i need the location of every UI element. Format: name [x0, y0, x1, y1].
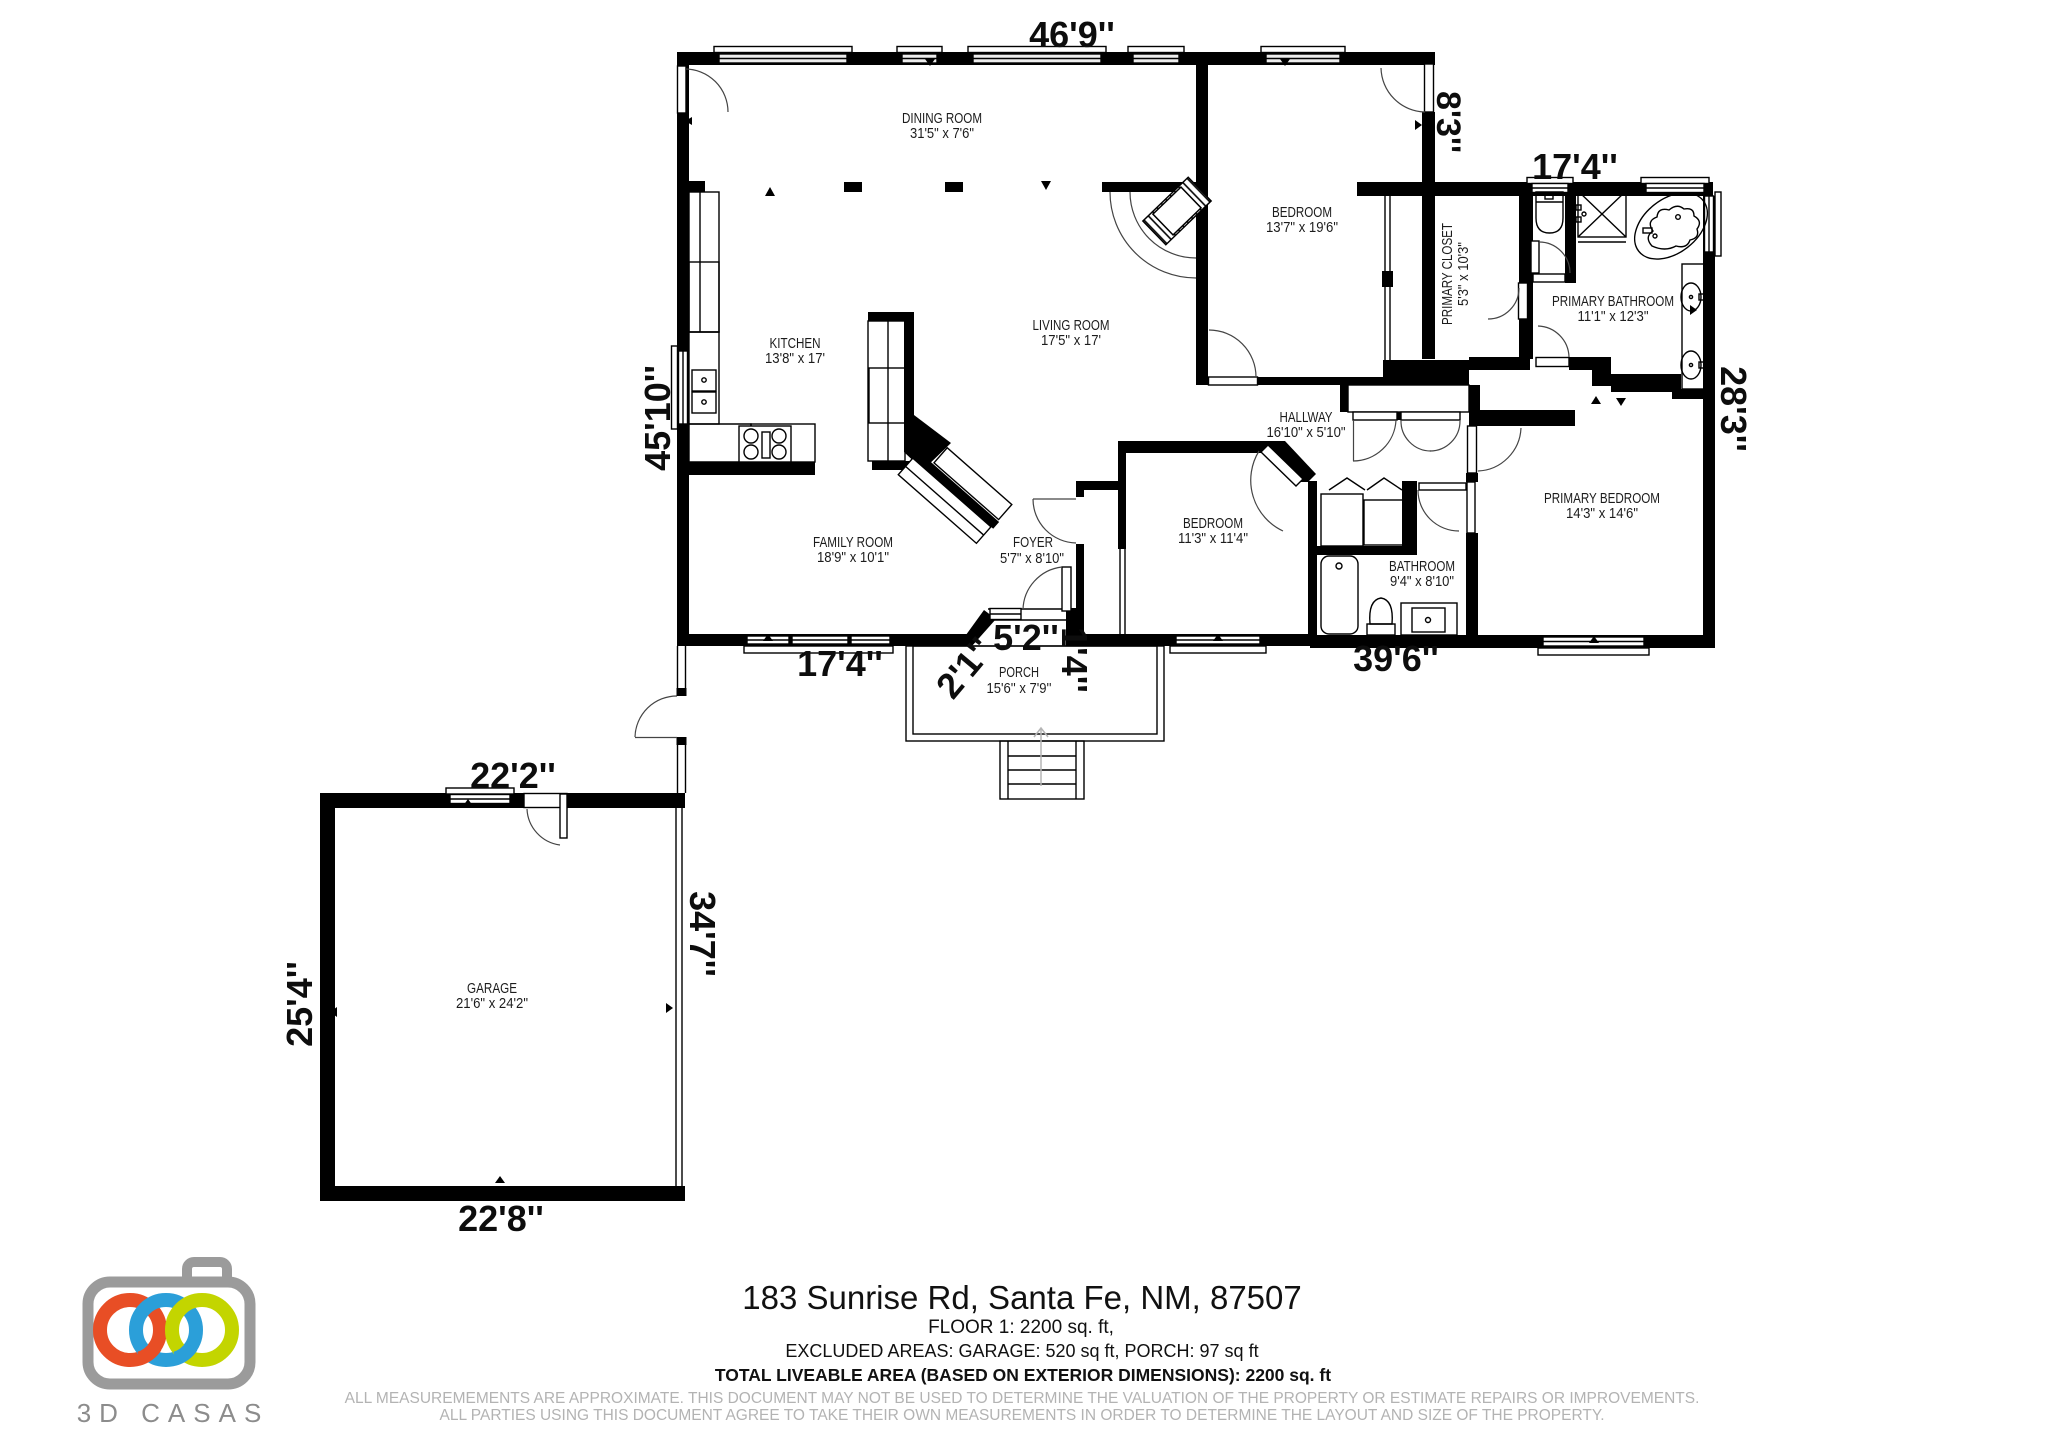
svg-text:8'3'': 8'3'' [1429, 91, 1467, 153]
svg-text:GARAGE: GARAGE [467, 981, 517, 997]
svg-text:FLOOR 1: 2200 sq. ft,: FLOOR 1: 2200 sq. ft, [928, 1317, 1114, 1338]
svg-text:ALL PARTIES USING THIS DOCUMEN: ALL PARTIES USING THIS DOCUMENT AGREE TO… [439, 1407, 1604, 1424]
svg-text:16'10" x 5'10": 16'10" x 5'10" [1267, 425, 1346, 441]
svg-text:5'7" x 8'10": 5'7" x 8'10" [1000, 551, 1064, 567]
svg-text:17'5" x 17': 17'5" x 17' [1041, 333, 1101, 349]
svg-text:11'1" x 12'3": 11'1" x 12'3" [1578, 309, 1649, 325]
svg-text:PRIMARY BEDROOM: PRIMARY BEDROOM [1544, 491, 1660, 507]
svg-text:28'3'': 28'3'' [1713, 366, 1754, 452]
svg-text:1'4'': 1'4'' [1054, 627, 1095, 693]
svg-text:22'8'': 22'8'' [458, 1198, 544, 1239]
svg-text:KITCHEN: KITCHEN [770, 336, 821, 352]
svg-text:18'9" x 10'1": 18'9" x 10'1" [817, 550, 889, 566]
svg-text:BEDROOM: BEDROOM [1183, 516, 1243, 532]
svg-text:PORCH: PORCH [999, 665, 1039, 681]
svg-text:TOTAL LIVEABLE AREA (BASED ON: TOTAL LIVEABLE AREA (BASED ON EXTERIOR D… [715, 1365, 1331, 1385]
svg-text:13'8" x 17': 13'8" x 17' [765, 351, 825, 367]
svg-text:HALLWAY: HALLWAY [1280, 410, 1333, 426]
svg-text:17'4'': 17'4'' [1532, 146, 1618, 187]
svg-text:183 Sunrise Rd, Santa Fe, NM,: 183 Sunrise Rd, Santa Fe, NM, 87507 [742, 1279, 1302, 1316]
svg-text:PRIMARY CLOSET: PRIMARY CLOSET [1440, 223, 1456, 325]
svg-text:ALL MEASUREMEMENTS ARE APPROXI: ALL MEASUREMEMENTS ARE APPROXIMATE. THIS… [345, 1390, 1700, 1407]
svg-text:EXCLUDED AREAS: GARAGE: 520 sq: EXCLUDED AREAS: GARAGE: 520 sq ft, PORCH… [785, 1341, 1258, 1361]
svg-text:25'4'': 25'4'' [279, 961, 320, 1047]
svg-text:BATHROOM: BATHROOM [1389, 559, 1455, 575]
svg-text:22'2'': 22'2'' [470, 755, 556, 796]
svg-text:LIVING ROOM: LIVING ROOM [1033, 318, 1110, 334]
svg-text:17'4'': 17'4'' [797, 643, 883, 684]
svg-text:BEDROOM: BEDROOM [1272, 205, 1332, 221]
svg-text:45'10'': 45'10'' [637, 365, 678, 471]
svg-text:21'6" x 24'2": 21'6" x 24'2" [456, 996, 528, 1012]
svg-text:34'7'': 34'7'' [682, 891, 723, 977]
svg-text:31'5" x 7'6": 31'5" x 7'6" [910, 126, 974, 142]
svg-text:5'3" x 10'3": 5'3" x 10'3" [1456, 242, 1472, 306]
svg-text:46'9'': 46'9'' [1029, 14, 1115, 55]
svg-text:14'3" x 14'6": 14'3" x 14'6" [1566, 506, 1638, 522]
svg-text:DINING ROOM: DINING ROOM [902, 111, 982, 127]
svg-text:15'6'' x 7'9'': 15'6'' x 7'9'' [987, 681, 1052, 697]
svg-text:FOYER: FOYER [1013, 535, 1053, 551]
svg-text:11'3" x 11'4": 11'3" x 11'4" [1178, 531, 1248, 547]
svg-text:9'4" x 8'10": 9'4" x 8'10" [1390, 574, 1454, 590]
svg-text:PRIMARY BATHROOM: PRIMARY BATHROOM [1552, 294, 1674, 310]
svg-text:3D CASAS: 3D CASAS [77, 1398, 270, 1428]
svg-text:39'6'': 39'6'' [1353, 638, 1439, 679]
svg-text:FAMILY ROOM: FAMILY ROOM [813, 535, 893, 551]
svg-text:5'2'': 5'2'' [993, 617, 1059, 658]
svg-text:13'7" x 19'6": 13'7" x 19'6" [1266, 220, 1338, 236]
